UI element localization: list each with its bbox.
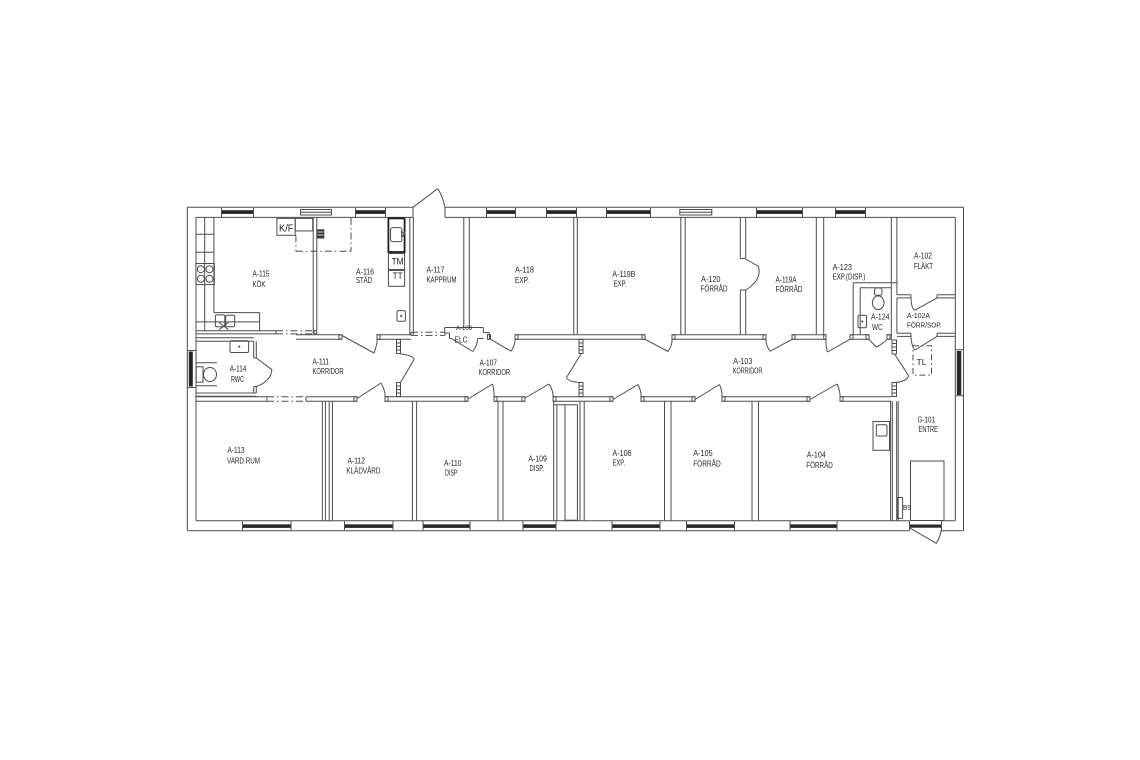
- svg-text:A-124: A-124: [871, 312, 890, 322]
- svg-text:A-106: A-106: [613, 448, 632, 458]
- svg-text:A-110: A-110: [444, 458, 462, 468]
- svg-text:A-107: A-107: [480, 357, 498, 367]
- svg-text:TL: TL: [917, 357, 927, 367]
- svg-text:TM: TM: [392, 257, 404, 267]
- svg-text:K/F: K/F: [279, 223, 294, 235]
- svg-text:KORRIDOR: KORRIDOR: [733, 366, 763, 376]
- svg-text:EXP.: EXP.: [515, 275, 529, 285]
- svg-text:A-114: A-114: [230, 363, 247, 373]
- svg-text:FÖRRÅD: FÖRRÅD: [693, 458, 721, 468]
- svg-text:FÖRR/SOP.: FÖRR/SOP.: [907, 320, 942, 329]
- svg-text:ELC: ELC: [455, 334, 468, 344]
- svg-text:DISP: DISP: [445, 468, 458, 478]
- svg-text:FÖRRÅD: FÖRRÅD: [806, 460, 833, 470]
- svg-text:RWC: RWC: [231, 374, 244, 384]
- svg-text:A-102: A-102: [914, 250, 932, 260]
- svg-text:EXP.: EXP.: [614, 278, 627, 288]
- svg-text:KAPPRUM: KAPPRUM: [427, 274, 457, 284]
- svg-text:A-118: A-118: [515, 264, 534, 274]
- svg-text:KLÄDVÅRD: KLÄDVÅRD: [346, 466, 380, 476]
- svg-text:FÖRRÅD: FÖRRÅD: [776, 284, 803, 294]
- svg-text:VARD.RUM: VARD.RUM: [227, 455, 260, 465]
- svg-text:A-103: A-103: [733, 356, 752, 366]
- svg-text:WC: WC: [872, 322, 883, 332]
- svg-text:A-108: A-108: [456, 326, 473, 332]
- svg-text:KORRIDOR: KORRIDOR: [313, 366, 344, 376]
- svg-text:A-112: A-112: [348, 456, 366, 466]
- svg-text:ENTRE: ENTRE: [919, 424, 939, 434]
- svg-text:A-104: A-104: [807, 449, 826, 459]
- svg-text:A-123: A-123: [833, 262, 853, 272]
- svg-text:TT: TT: [393, 271, 403, 281]
- svg-text:A-115: A-115: [253, 269, 270, 279]
- svg-text:A-113: A-113: [228, 445, 245, 455]
- svg-text:A-111: A-111: [313, 357, 330, 367]
- svg-text:A-117: A-117: [427, 264, 445, 274]
- svg-text:A-105: A-105: [693, 448, 713, 458]
- svg-text:STÄD: STÄD: [356, 275, 372, 285]
- svg-text:B9: B9: [903, 503, 911, 512]
- svg-text:FÖRRÅD: FÖRRÅD: [701, 283, 728, 293]
- svg-text:FLÄKT: FLÄKT: [914, 261, 934, 271]
- svg-text:EXP.(DISP.): EXP.(DISP.): [833, 272, 866, 282]
- svg-text:KÖK: KÖK: [253, 279, 266, 289]
- svg-text:G-101: G-101: [918, 414, 936, 424]
- svg-text:A-102A: A-102A: [907, 311, 931, 320]
- svg-text:DISP.: DISP.: [530, 463, 545, 473]
- svg-text:KORRIDOR: KORRIDOR: [479, 367, 511, 377]
- svg-text:A-109: A-109: [528, 453, 547, 463]
- svg-text:EXP.: EXP.: [613, 457, 626, 467]
- svg-text:A-119A: A-119A: [776, 275, 797, 285]
